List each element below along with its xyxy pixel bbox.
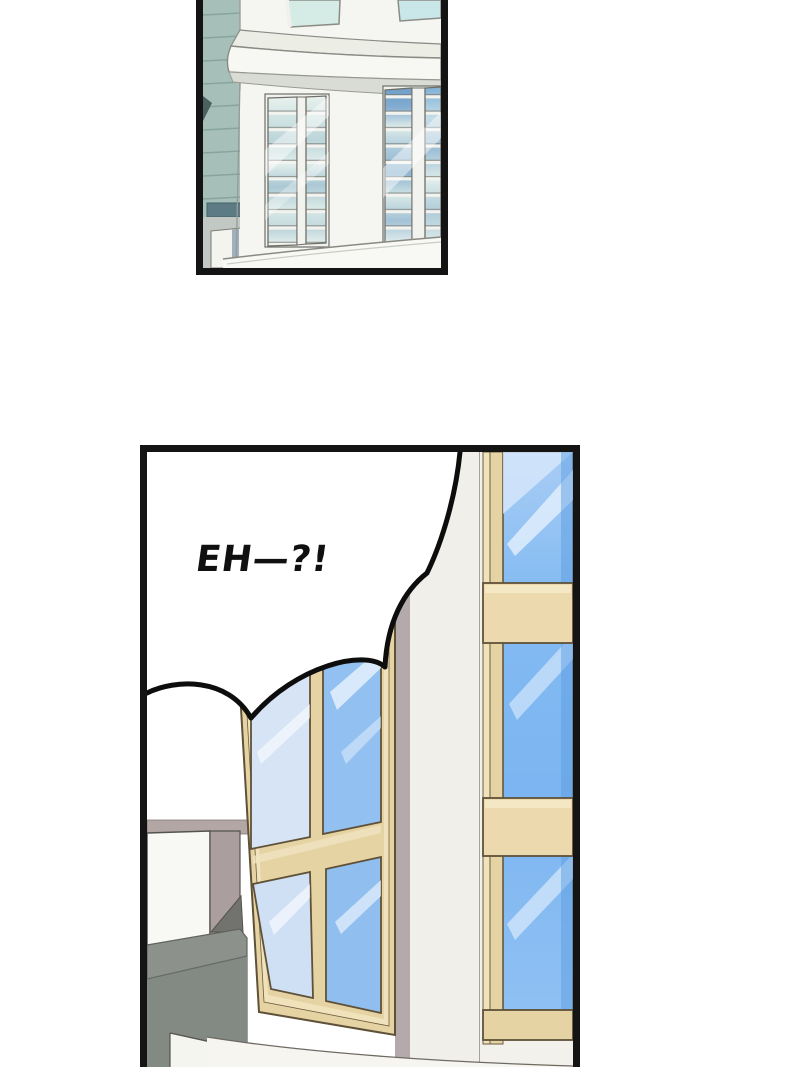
bottom-panel: EH—?!: [140, 445, 580, 1067]
bottom-panel-art: EH—?!: [147, 452, 573, 1067]
siding-dark-band: [207, 203, 241, 217]
top-panel: [196, 0, 448, 275]
pane-lower-right: [326, 857, 381, 1013]
right-window-frame: [490, 452, 503, 1044]
right-window-band-highlight: [485, 585, 571, 593]
right-window-frame-light: [483, 452, 490, 1044]
right-window-sill: [483, 1010, 573, 1040]
glass-column-bars: [425, 87, 441, 243]
strip-window-left: [265, 94, 329, 247]
rooftop-window-left: [288, 0, 340, 27]
right-window-band-highlight: [485, 800, 571, 808]
speech-bubble-text: EH—?!: [193, 537, 332, 580]
glass-column-bars: [268, 97, 297, 246]
comic-page: EH—?!: [0, 0, 800, 1067]
strip-window-right: [383, 86, 441, 246]
tower-building: [223, 0, 441, 268]
glass-edge-shade: [561, 452, 573, 1010]
window-column-right: [483, 452, 573, 1044]
rooftop-window-right: [398, 0, 441, 21]
top-panel-art: [203, 0, 441, 268]
ledge-box-front: [147, 831, 210, 945]
